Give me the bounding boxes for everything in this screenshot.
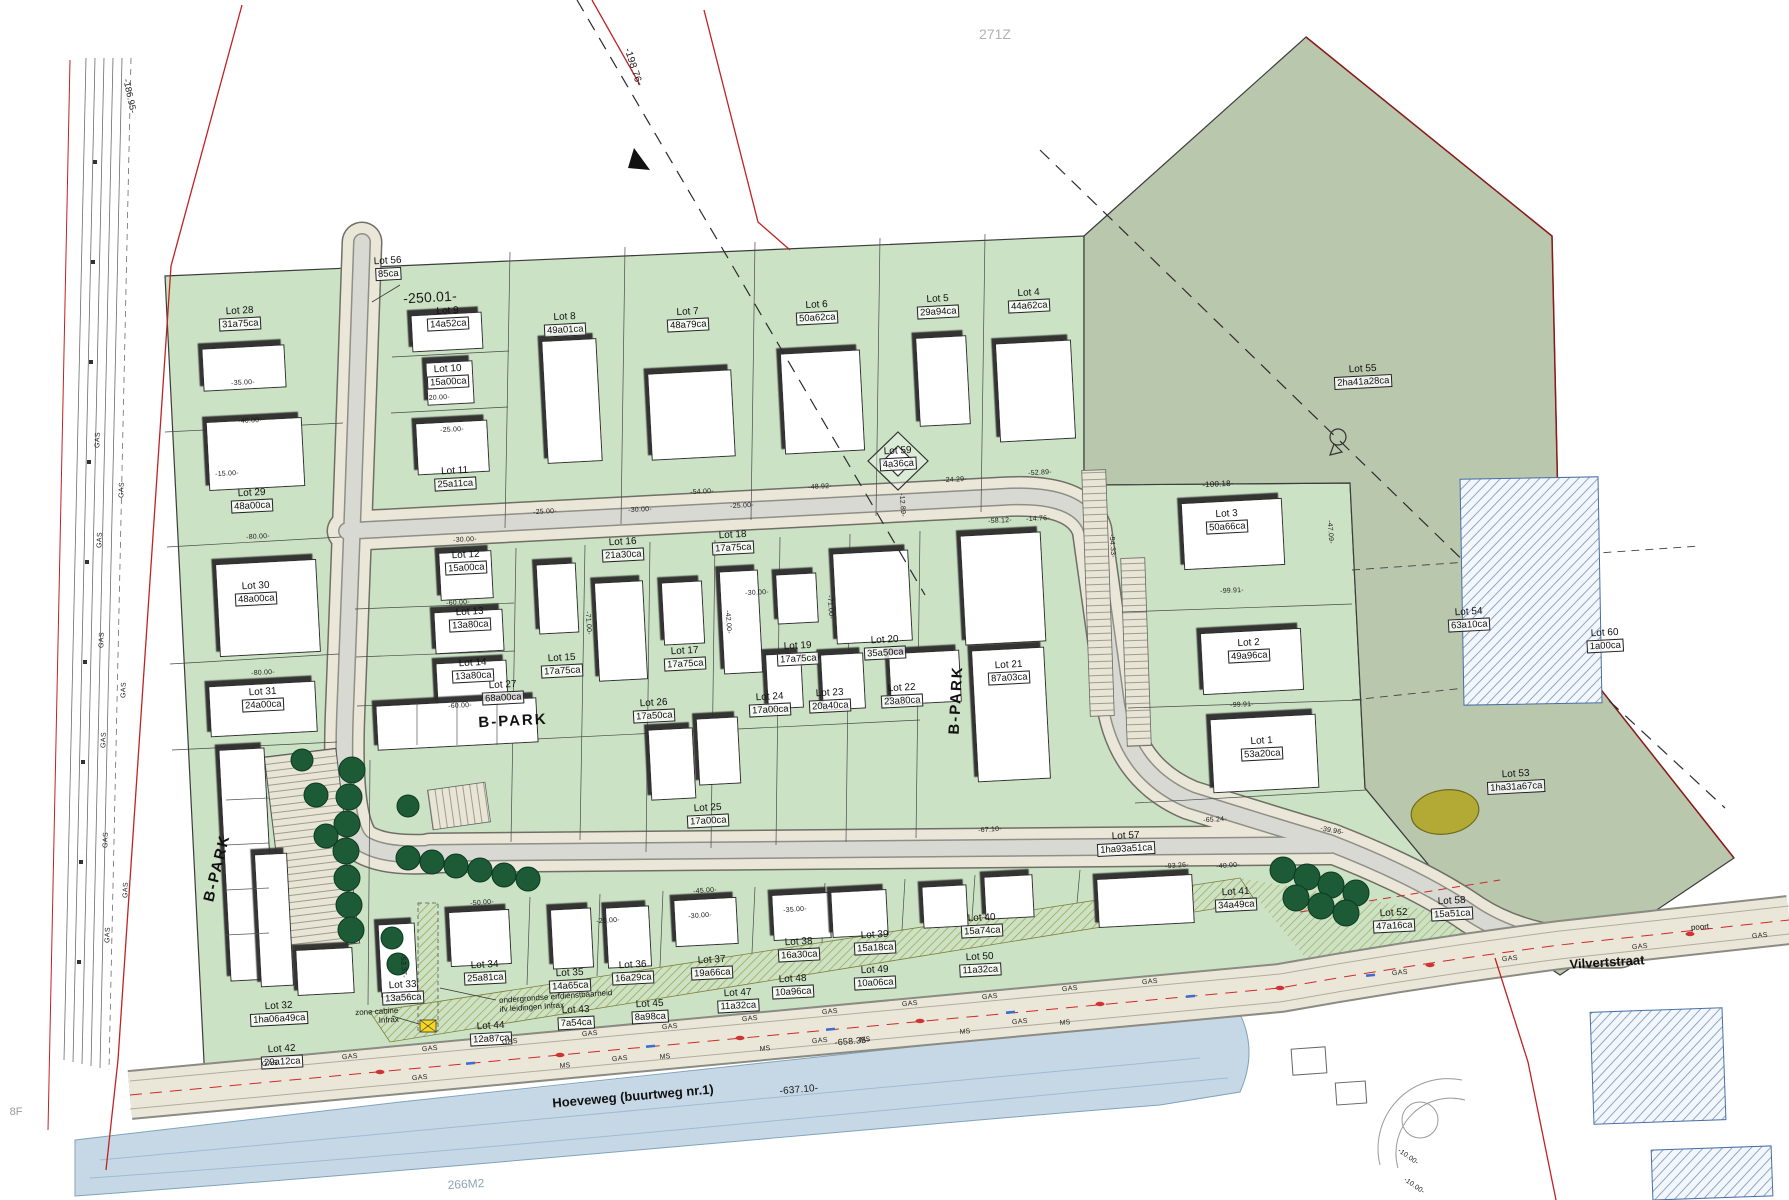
zone-label-bpark-west: B-PARK [200,832,233,903]
lot-number: Lot 48 [771,972,814,985]
lot-number: Lot 15 [540,651,583,664]
lot-area: 35a50ca [864,645,907,660]
gas-pipeline-label: GAS [502,1038,519,1046]
lot-number: Lot 17 [663,644,706,657]
gas-pipeline-label: GAS [982,993,999,1001]
lot-label: Lot 3915a18ca [853,928,897,955]
gas-pipeline-label: GAS [822,1008,839,1016]
parcel-ref-266m2: 266M2 [447,1176,484,1192]
labels-layer: B-PARK B-PARK B-PARK Hoeveweg (buurtweg … [0,0,1789,1200]
dimension-label: -100.18- [1202,479,1234,490]
lot-label: Lot 914a52ca [426,304,470,331]
gas-pipeline-label: GAS [342,1053,359,1061]
lot-area: 7a54ca [557,1016,595,1031]
dimension-label: -30.00- [688,912,712,921]
parcel-ref-271z: 271Z [979,26,1011,42]
lot-area: 48a00ca [235,591,278,606]
dimension-label: -48.92- [808,483,832,491]
lot-number: Lot 9 [426,304,469,317]
lot-area: 17a00ca [749,702,792,717]
lot-label: Lot 3816a30ca [777,935,821,962]
lot-number: Lot 18 [711,528,754,541]
dimension-label: -15.00- [215,470,239,478]
lot-label: Lot 5247a16ca [1372,906,1416,933]
lot-area: 11a32ca [959,962,1001,977]
lot-area: 15a51ca [1431,906,1474,921]
lot-area: 15a74ca [961,923,1004,938]
lot-area: 10a06ca [854,975,897,990]
lot-area: 50a66ca [1206,519,1249,534]
dimension-label: -60.00- [448,702,472,710]
dimension-label: -40.00- [1216,862,1240,871]
lot-number: Lot 11 [433,464,475,477]
dimension-label: -52.89- [1028,469,1052,477]
lot-area: 17a75ca [712,540,755,555]
lot-area: 48a79ca [667,317,710,332]
dimension-label: -25.00- [533,508,557,516]
lot-area: 1ha93a51ca [1097,841,1156,857]
dimension-label: -47.09- [1326,520,1335,544]
lot-area: 13a80ca [449,617,492,632]
gas-pipeline-label: GAS [412,1074,429,1082]
dimension-label: -58.12- [988,517,1012,525]
lot-label: Lot 594a36ca [879,445,917,472]
lot-area: 63a10ca [1448,617,1491,632]
lot-number: Lot 50 [958,950,1000,963]
dimension-label: -12.89- [898,493,907,517]
lot-area: 68a00ca [482,690,525,705]
lot-area: 11a32ca [717,998,759,1013]
lot-number: Lot 24 [748,690,791,703]
lot-number: Lot 41 [1214,885,1257,898]
lot-area: 19a66ca [691,965,734,980]
dimension-label: -186.95- [121,78,138,114]
lot-area: 8a98ca [631,1010,669,1025]
lot-label: Lot 2831a75ca [218,304,262,331]
lot-number: Lot 27 [481,678,524,691]
lot-label: Lot 5685ca [373,255,402,281]
gas-pipeline-label: GAS [1062,985,1079,993]
lot-area: 4a36ca [879,457,917,472]
lot-number: Lot 31 [241,685,284,698]
lot-area: 16a30ca [778,947,821,962]
lot-label: Lot 1717a75ca [663,644,707,671]
lot-number: Lot 28 [218,304,261,317]
lot-label: Lot 849a01ca [543,310,587,337]
gas-pipeline-label: GAS [1012,1018,1029,1026]
gas-pipeline-label: GAS [1752,932,1769,940]
lot-area: 44a62ca [1008,298,1051,313]
dimension-label: -40.00- [238,417,262,425]
dimension-label: -25.00- [440,426,464,434]
lot-area: 25a11ca [434,476,476,491]
lot-label: Lot 4711a32ca [716,986,759,1013]
dimension-label: -39.96- [1320,826,1344,837]
lot-label: Lot 437a54ca [557,1004,595,1031]
gas-pipeline-label: GAS [812,1037,829,1045]
ms-pipeline-label: MS [959,1028,970,1036]
lot-label: Lot 552ha41a28ca [1333,362,1393,390]
lot-number: Lot 21 [987,658,1030,671]
lot-number: Lot 16 [601,535,644,548]
lot-label: Lot 3719a66ca [690,953,734,980]
dimension-label: -50.00- [470,899,494,908]
lot-number: Lot 3 [1205,507,1248,520]
lot-number: Lot 23 [808,686,851,699]
dimension-label: -14.76- [1026,515,1050,523]
lot-area: 17a50ca [633,708,676,723]
lot-number: Lot 13 [448,605,491,618]
lot-label: Lot 531ha31a67ca [1486,767,1546,795]
lot-label: Lot 2320a40ca [808,686,852,713]
dimension-label: -10.00- [1402,1176,1425,1195]
lot-label: Lot 1125a11ca [433,464,476,491]
lot-number: Lot 19 [776,639,819,652]
gas-pipeline-label: GAS [100,732,108,748]
lot-label: Lot 1215a00ca [444,548,488,575]
gas-pipeline-label: GAS [96,532,104,548]
lot-label: Lot 748a79ca [666,305,710,332]
lot-label: Lot 4015a74ca [960,911,1004,938]
lot-number: Lot 54 [1447,605,1490,618]
note-cabine: zone cabine Infrax [355,1006,399,1026]
lot-number: Lot 8 [543,310,586,323]
lot-label: Lot 601a00ca [1586,627,1624,654]
lot-number: Lot 5 [916,292,959,305]
lot-area: 14a52ca [427,316,470,331]
lot-number: Lot 35 [548,966,591,979]
lot-area: 13a56ca [382,990,425,1005]
lot-label: Lot 1917a75ca [776,639,820,666]
gas-pipeline-label: GAS [1392,969,1409,977]
lot-number: Lot 25 [686,801,729,814]
dimension-label: -67.10- [978,826,1002,835]
dimension-label: -71.00- [826,595,835,619]
lot-area: 15a00ca [445,560,488,575]
dimension-label: -71.00- [584,611,593,635]
lot-label: Lot 2617a50ca [632,696,676,723]
lot-number: Lot 14 [451,656,494,669]
lot-area: 49a01ca [544,322,587,337]
gas-pipeline-label: GAS [612,1055,629,1063]
lot-number: Lot 34 [463,958,506,971]
lot-number: Lot 30 [234,579,277,592]
lot-area: 1ha31a67ca [1487,779,1546,795]
lot-area: 17a75ca [541,663,584,678]
gas-pipeline-label: GAS [94,432,102,448]
lot-label: Lot 1517a75ca [540,651,584,678]
dimension-label: -25.00- [596,917,620,926]
lot-number: Lot 45 [631,998,669,1011]
lot-area: 2ha41a28ca [1334,374,1393,390]
lot-number: Lot 60 [1586,627,1624,640]
dimension-label: -54.00- [690,488,714,496]
lot-area: 17a00ca [687,813,730,828]
ms-pipeline-label: MS [559,1062,570,1070]
dimension-label: -53.37- [399,954,408,978]
lot-area: 17a75ca [777,651,820,666]
poort-label: poort [1691,922,1710,932]
gas-pipeline-label: GAS [422,1045,439,1053]
dimension-label: -10.00- [1396,1147,1419,1166]
lot-label: Lot 4810a96ca [771,972,815,999]
ms-pipeline-label: MS [659,1053,670,1061]
lot-label: Lot 5011a32ca [958,950,1001,977]
lot-number: Lot 6 [795,298,838,311]
subdivision-site-plan: B-PARK B-PARK B-PARK Hoeveweg (buurtweg … [0,0,1789,1200]
dimension-label: -60.00- [446,599,470,607]
lot-label: Lot 571ha93a51ca [1096,829,1156,857]
dimension-label: -637.10- [779,1083,819,1097]
gas-pipeline-label: GAS [118,482,126,498]
dimension-label: -80.00- [246,533,270,541]
dimension-label: -35.00- [783,906,807,915]
lot-number: Lot 40 [960,911,1003,924]
lot-label: Lot 3616a29ca [611,958,655,985]
lot-label: Lot 5815a51ca [1430,894,1474,921]
ms-pipeline-label: MS [759,1045,770,1053]
lot-number: Lot 20 [863,633,906,646]
lot-label: Lot 3124a00ca [241,685,285,712]
gas-pipeline-label: GAS [120,682,128,698]
parcel-ref-8f: 8F [10,1106,23,1118]
lot-area: 1ha06a49ca [250,1011,309,1027]
lot-number: Lot 49 [853,963,896,976]
gas-pipeline-label: GAS [122,882,130,898]
dimension-label: -24.29- [943,476,967,484]
lot-area: 23a80ca [881,693,924,708]
dimension-label: -93.26- [1165,862,1189,871]
lot-label: Lot 650a62ca [795,298,839,325]
lot-area: 49a96ca [1228,648,1271,663]
lot-area: 17a75ca [664,656,707,671]
lot-area: 15a00ca [427,374,470,389]
dimension-label: -99.91- [1230,701,1254,709]
dimension-label: -99.91- [1220,587,1244,595]
lot-label: Lot 2948a00ca [230,486,274,513]
ms-pipeline-label: MS [1059,1019,1070,1027]
lot-area: 48a00ca [231,498,274,513]
ms-pipeline-label: MS [859,1036,870,1044]
street-label-hoeveweg: Hoeveweg (buurtweg nr.1) [552,1081,715,1110]
lot-area: 15a18ca [854,940,897,955]
lot-label: Lot 3514a65ca [548,966,592,993]
gas-pipeline-label: GAS [102,832,110,848]
lot-area: 1a00ca [1586,639,1624,654]
lot-label: Lot 4910a06ca [853,963,897,990]
lot-label: Lot 350a66ca [1205,507,1249,534]
lot-number: Lot 1 [1240,734,1283,747]
lot-label: Lot 529a94ca [916,292,960,319]
lot-label: Lot 1817a75ca [711,528,755,555]
lot-label: Lot 249a96ca [1227,636,1271,663]
lot-area: 34a49ca [1215,897,1258,912]
lot-number: Lot 12 [444,548,487,561]
gas-pipeline-label: GAS [1502,955,1519,963]
lot-number: Lot 2 [1227,636,1270,649]
lot-area: 10a96ca [772,984,815,999]
street-label-vilvertstraat: Vilvertstraat [1569,952,1645,972]
dimension-label: -30.00- [628,506,652,514]
lot-label: Lot 3313a56ca [381,978,425,1005]
gas-pipeline-label: GAS [104,927,112,943]
lot-area: 14a65ca [549,978,592,993]
lot-number: Lot 33 [381,978,424,991]
zone-label-bpark-center: B-PARK [478,711,548,732]
gas-pipeline-label: GAS [262,1060,279,1068]
lot-area: 85ca [375,267,402,281]
gas-pipeline-label: GAS [1632,943,1649,951]
lot-label: Lot 444a62ca [1007,286,1051,313]
lot-label: Lot 2417a00ca [748,690,792,717]
gas-pipeline-label: GAS [902,1000,919,1008]
dimension-label: -20.00- [426,394,450,402]
lot-area: 47a16ca [1373,918,1416,933]
gas-pipeline-label: GAS [1142,978,1159,986]
lot-label: Lot 2517a00ca [686,801,730,828]
dimension-label: -35.00- [231,379,255,387]
lot-number: Lot 10 [426,362,469,375]
gas-pipeline-label: GAS [662,1023,679,1031]
lot-number: Lot 4 [1007,286,1050,299]
lot-label: Lot 1621a30ca [601,535,645,562]
dimension-label: -65.24- [1203,816,1227,824]
gas-pipeline-label: GAS [98,632,106,648]
lot-area: 29a94ca [917,304,960,319]
lot-label: Lot 4134a49ca [1214,885,1258,912]
lot-number: Lot 29 [230,486,273,499]
gas-pipeline-label: GAS [582,1030,599,1038]
dimension-label: -198.76- [622,47,644,87]
lot-number: Lot 43 [557,1004,595,1017]
lot-number: Lot 44 [469,1019,512,1032]
lot-number: Lot 42 [260,1042,303,1055]
dimension-label: -54.33- [1108,534,1117,558]
lot-label: Lot 1313a80ca [448,605,492,632]
lot-area: 21a30ca [602,547,645,562]
dimension-label: -42.00- [724,610,733,634]
lot-area: 87a03ca [988,670,1031,685]
lot-label: Lot 5463a10ca [1447,605,1491,632]
lot-label: Lot 458a98ca [631,998,669,1025]
lot-number: Lot 22 [880,681,923,694]
lot-number: Lot 56 [373,255,401,267]
lot-label: Lot 2768a00ca [481,678,525,705]
lot-number: Lot 37 [690,953,733,966]
lot-area: 53a20ca [1241,746,1284,761]
lot-number: Lot 7 [666,305,709,318]
lot-label: Lot 3425a81ca [463,958,507,985]
lot-area: 16a29ca [612,970,655,985]
lot-label: Lot 2187a03ca [987,658,1031,685]
lot-area: 20a40ca [809,698,852,713]
lot-label: Lot 3048a00ca [234,579,278,606]
dimension-label: -45.00- [693,887,717,896]
lot-label: Lot 2223a80ca [880,681,924,708]
lot-area: 50a62ca [796,310,839,325]
lot-number: Lot 52 [1372,906,1415,919]
lot-area: 31a75ca [219,316,262,331]
lot-number: Lot 47 [716,986,758,999]
lot-number: Lot 26 [632,696,675,709]
lot-number: Lot 36 [611,958,654,971]
lot-number: Lot 39 [853,928,896,941]
lot-number: Lot 59 [879,445,917,458]
lot-label: Lot 321ha06a49ca [249,999,309,1027]
dimension-label: -30.00- [745,589,769,597]
gas-pipeline-label: GAS [742,1015,759,1023]
zone-label-bpark-east: B-PARK [946,665,967,735]
lot-number: Lot 58 [1430,894,1473,907]
lot-area: 24a00ca [242,697,285,712]
dimension-label: -25.00- [730,502,754,510]
lot-label: Lot 153a20ca [1240,734,1284,761]
lot-label: Lot 2035a50ca [863,633,907,660]
lot-label: Lot 1015a00ca [426,362,470,389]
dimension-label: -30.00- [453,536,477,544]
note-cabine-line2: Infrax [379,1015,399,1025]
lot-area: 25a81ca [464,970,507,985]
dimension-label: -80.00- [251,669,275,677]
lot-number: Lot 38 [777,935,820,948]
dimension-label: -250.01- [403,288,458,307]
